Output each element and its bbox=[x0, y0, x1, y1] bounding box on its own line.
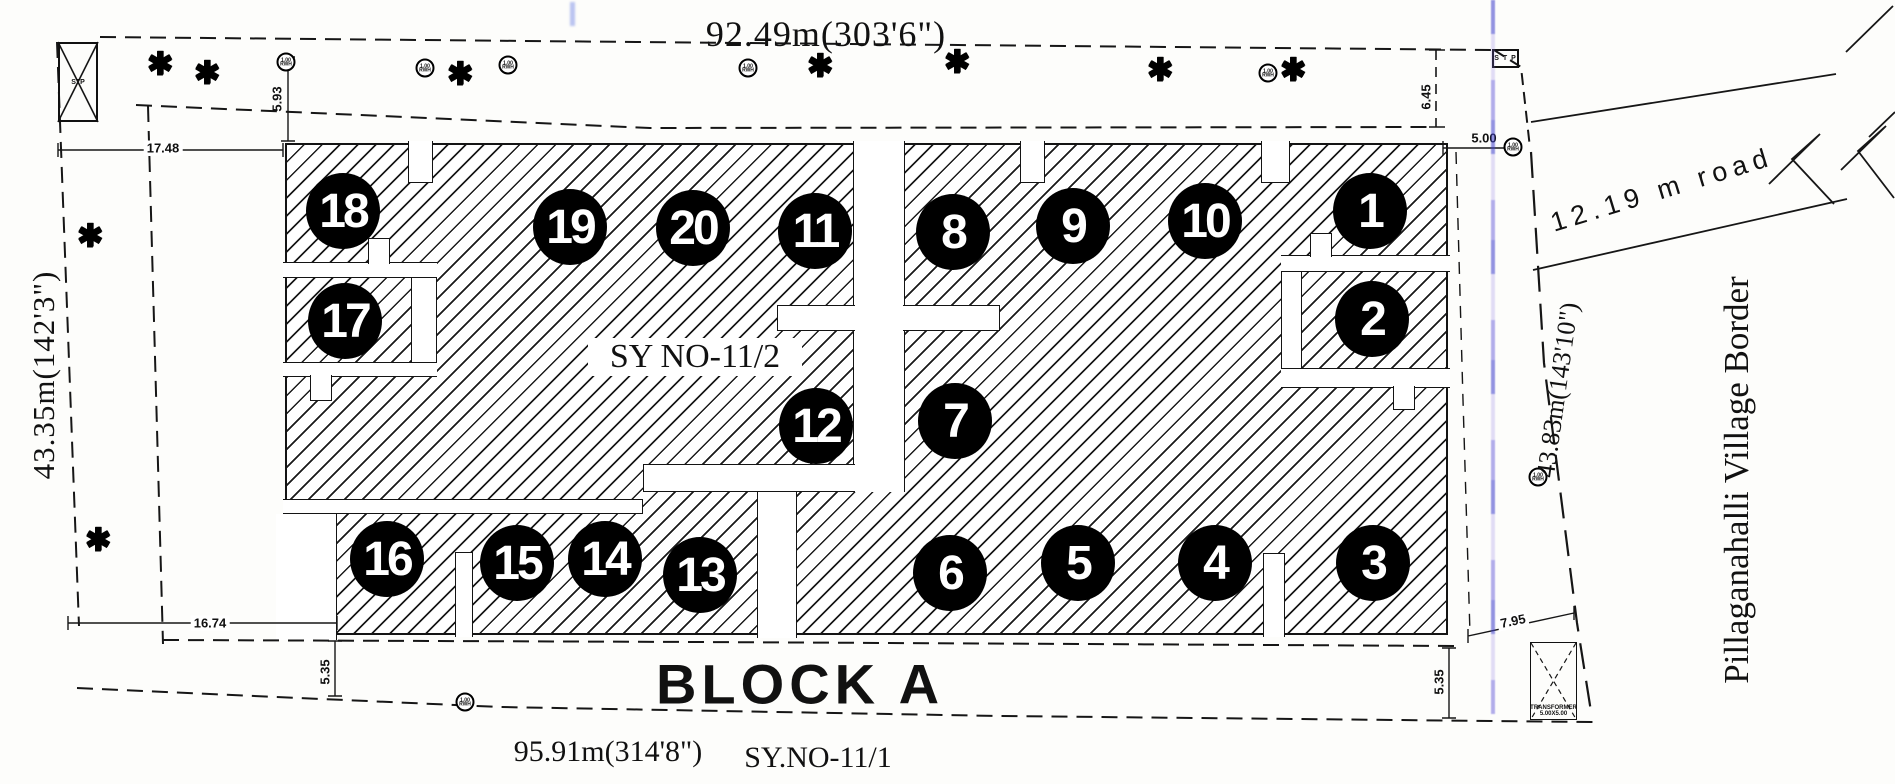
dim-road-bottom-right: 5.35 bbox=[1432, 669, 1447, 694]
plot-circle-6: 6 bbox=[913, 535, 987, 611]
rwh-marker: 1.00RWH bbox=[456, 693, 475, 712]
rwh-marker: 1.00RWH bbox=[739, 59, 758, 78]
plot-circle-5: 5 bbox=[1041, 525, 1115, 601]
plot-circle-1: 1 bbox=[1333, 173, 1407, 249]
site-plan-canvas: SY NO-11/2 bbox=[0, 0, 1895, 784]
plot-circle-17: 17 bbox=[308, 283, 382, 359]
tree-icon: ✱ bbox=[1280, 52, 1306, 88]
rwh-label: RWH bbox=[280, 62, 292, 66]
rwh-label: RWH bbox=[1507, 147, 1519, 151]
dim-corner-top-right: 6.45 bbox=[1419, 84, 1434, 109]
rwh-marker: 1.00RWH bbox=[499, 56, 518, 75]
plot-circle-7: 7 bbox=[918, 383, 992, 459]
dimension-bottom: 95.91m(314'8") bbox=[514, 735, 702, 769]
plot-circle-11: 11 bbox=[778, 193, 852, 269]
tree-icon: ✱ bbox=[77, 218, 103, 254]
plot-circle-15: 15 bbox=[480, 525, 554, 601]
stp-tank-box: STP bbox=[58, 42, 98, 122]
stp-label: STP bbox=[71, 79, 85, 86]
block-a-title: BLOCK A bbox=[656, 652, 944, 717]
plot-circle-2: 2 bbox=[1335, 281, 1409, 357]
dimension-left: 43.35m(142'3") bbox=[26, 271, 62, 480]
transformer-size: 5.00X5.00 bbox=[1540, 711, 1567, 717]
plot-circle-20: 20 bbox=[656, 190, 730, 266]
dimension-top: 92.49m(303'6") bbox=[706, 13, 946, 55]
stp-small-box: S T P bbox=[1492, 49, 1519, 68]
tree-icon: ✱ bbox=[447, 56, 473, 92]
plot-circle-16: 16 bbox=[350, 521, 424, 597]
plot-circle-14: 14 bbox=[568, 521, 642, 597]
stp-small-label: S T P bbox=[1494, 55, 1517, 62]
rwh-label: RWH bbox=[1532, 477, 1544, 481]
rwh-label: RWH bbox=[502, 65, 514, 69]
plot-circle-12: 12 bbox=[779, 388, 853, 464]
dim-offset-top-left: 17.48 bbox=[144, 141, 183, 156]
dim-strip-top: 5.93 bbox=[270, 86, 285, 111]
tree-icon: ✱ bbox=[85, 522, 111, 558]
tree-icon: ✱ bbox=[944, 44, 970, 80]
plot-circle-8: 8 bbox=[916, 194, 990, 270]
tree-icon: ✱ bbox=[194, 55, 220, 91]
rwh-marker: 1.00RWH bbox=[1504, 138, 1523, 157]
village-border-label: Pillaganahalli Village Border bbox=[1717, 276, 1757, 683]
plot-circle-9: 9 bbox=[1036, 188, 1110, 264]
plot-circle-4: 4 bbox=[1178, 525, 1252, 601]
plot-circle-3: 3 bbox=[1336, 525, 1410, 601]
dim-offset-bottom-left: 16.74 bbox=[191, 616, 230, 631]
rwh-label: RWH bbox=[1262, 73, 1274, 77]
plot-circle-18: 18 bbox=[306, 173, 380, 249]
survey-number-south-label: SY.NO-11/1 bbox=[744, 741, 892, 775]
plot-circle-13: 13 bbox=[663, 537, 737, 613]
rwh-marker: 1.00RWH bbox=[277, 53, 296, 72]
rwh-marker: 1.00RWH bbox=[416, 59, 435, 78]
dim-stp-gap: 5.00 bbox=[1471, 131, 1496, 146]
transformer-box: TRANSFORMER 5.00X5.00 bbox=[1530, 642, 1577, 720]
rwh-label: RWH bbox=[459, 702, 471, 706]
rwh-label: RWH bbox=[742, 68, 754, 72]
dim-road-bottom-left: 5.35 bbox=[318, 659, 333, 684]
plot-circle-10: 10 bbox=[1168, 183, 1242, 259]
rwh-marker: 1.00RWH bbox=[1259, 64, 1278, 83]
tree-icon: ✱ bbox=[1147, 52, 1173, 88]
plot-circle-19: 19 bbox=[533, 189, 607, 265]
tree-icon: ✱ bbox=[147, 46, 173, 82]
rwh-label: RWH bbox=[419, 68, 431, 72]
